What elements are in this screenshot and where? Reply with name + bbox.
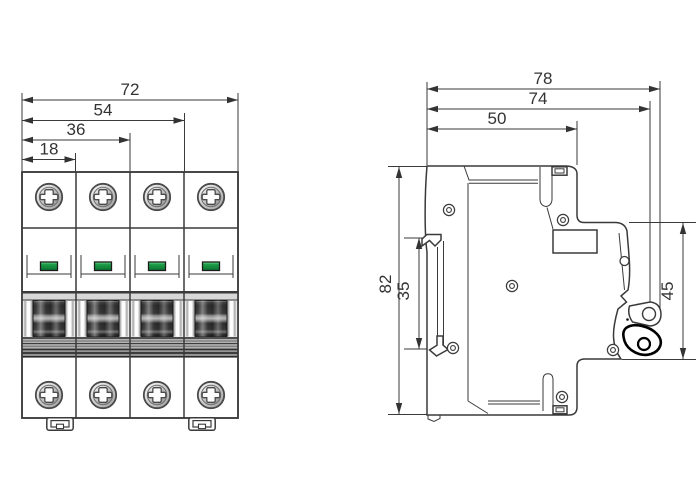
- dim-label-45: 45: [658, 282, 677, 301]
- indicator-window-3: [149, 262, 166, 271]
- dim-label-35: 35: [394, 282, 413, 301]
- dim-label-50: 50: [488, 109, 507, 128]
- lever-pivot-dot: [626, 318, 629, 321]
- din-clip-right[interactable]: [189, 418, 215, 430]
- lever-knob-hole: [638, 338, 650, 350]
- dim-label-78: 78: [534, 69, 553, 88]
- lever-arm-hole: [620, 257, 629, 266]
- dim-label-36: 36: [67, 120, 86, 139]
- dim-label-72: 72: [121, 80, 140, 99]
- screw-top-4: [198, 184, 224, 210]
- screw-bottom-1: [36, 382, 62, 408]
- lever-tip-hole: [643, 308, 656, 321]
- screw-bottom-2: [90, 382, 116, 408]
- screw-top-3: [144, 184, 170, 210]
- dim-label-74: 74: [529, 89, 548, 108]
- breaker-dimension-drawing: 72 54 36 18: [0, 0, 700, 500]
- bottom-busbar-tab: [553, 406, 567, 414]
- screw-top-1: [36, 184, 62, 210]
- indicator-window-4: [203, 262, 220, 271]
- front-terminal-block: [553, 230, 597, 253]
- screw-bottom-4: [198, 382, 224, 408]
- toggle-handle-3[interactable]: [141, 301, 173, 337]
- toggle-handle-4[interactable]: [195, 301, 227, 337]
- drawing-canvas: 72 54 36 18: [0, 0, 700, 500]
- toggle-handle-1[interactable]: [33, 301, 65, 337]
- indicator-window-1: [41, 262, 58, 271]
- dim-label-54: 54: [94, 101, 113, 120]
- dim-label-18: 18: [40, 140, 59, 159]
- indicator-window-2: [95, 262, 112, 271]
- top-busbar-tab: [552, 167, 567, 175]
- dim-label-82: 82: [376, 275, 395, 294]
- toggle-handle-2[interactable]: [87, 301, 119, 337]
- screw-bottom-3: [144, 382, 170, 408]
- screw-top-2: [90, 184, 116, 210]
- din-clip-left[interactable]: [47, 418, 73, 430]
